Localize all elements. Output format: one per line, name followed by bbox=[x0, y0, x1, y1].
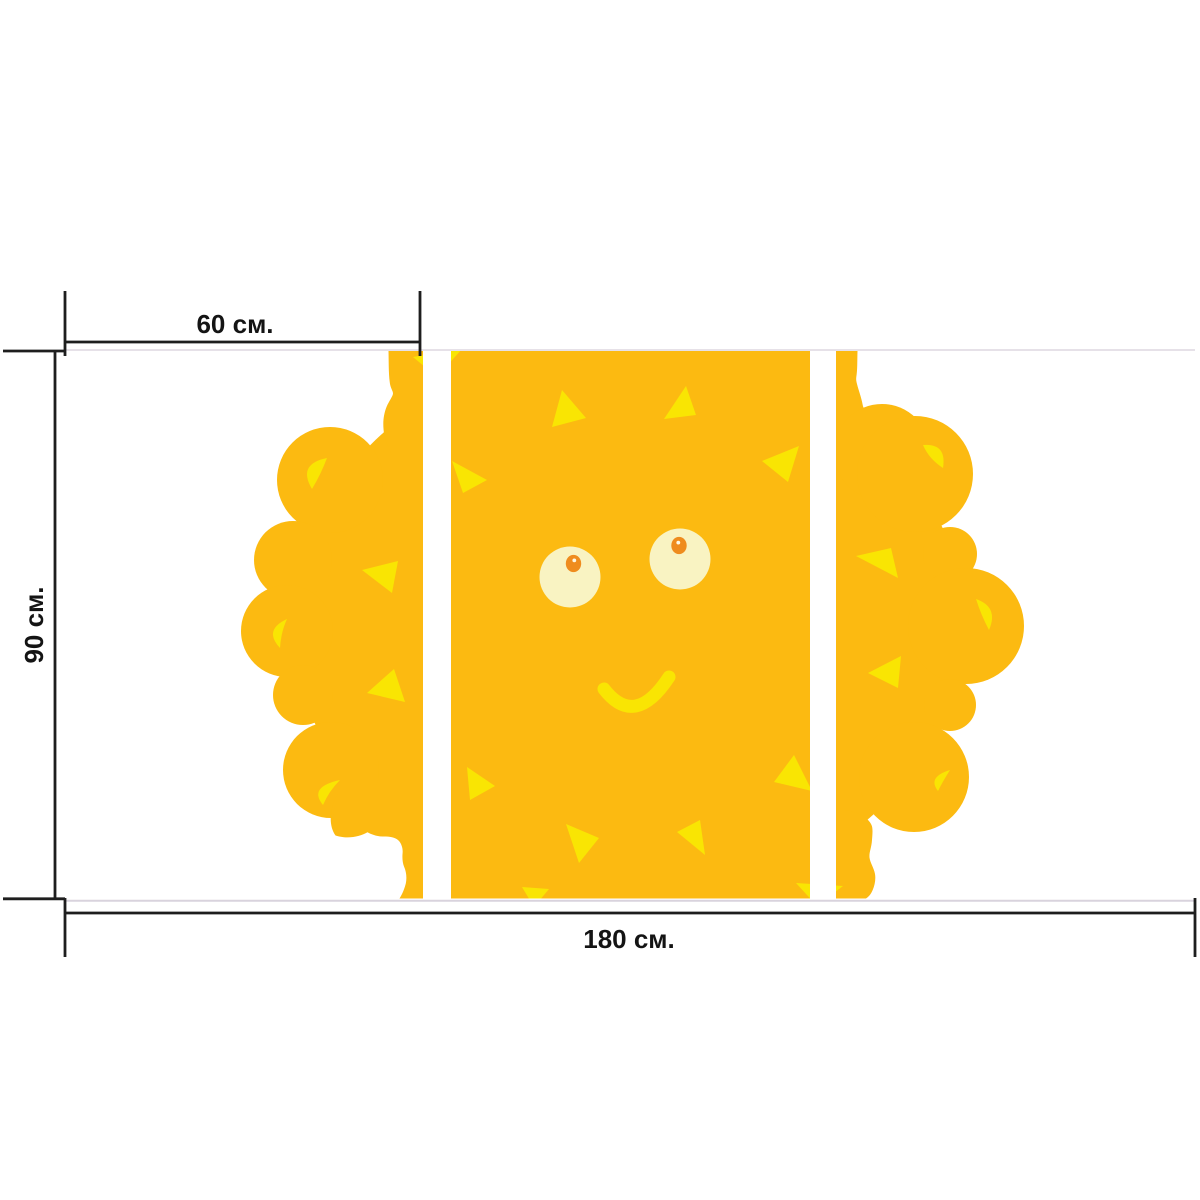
svg-text:180 см.: 180 см. bbox=[583, 924, 675, 954]
svg-text:90 см.: 90 см. bbox=[19, 586, 49, 663]
svg-text:60 см.: 60 см. bbox=[196, 309, 273, 339]
